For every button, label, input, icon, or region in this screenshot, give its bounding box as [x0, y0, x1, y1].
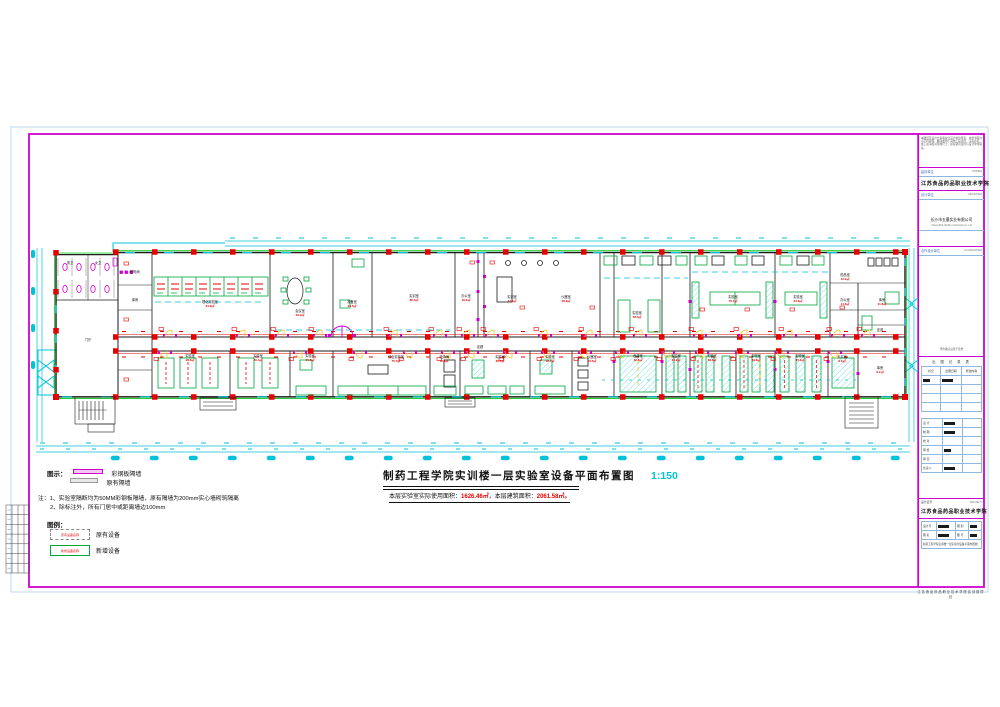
- tb-stamp-note: 甲方确认后签字盖章: [921, 348, 982, 351]
- svg-text:28.7㎡: 28.7㎡: [546, 358, 555, 363]
- tb-record-col-3: 修改内容: [962, 367, 982, 376]
- field-value-blob: [938, 525, 949, 528]
- floor-plan-canvas: 男卫女卫门厅配电间库房理化实验室64.8㎡会议室46.2㎡准备室23.5㎡实训室…: [0, 0, 1000, 707]
- new-equipment-tag: 新增设备名称: [61, 549, 79, 553]
- record-entry-blob: [942, 379, 953, 382]
- svg-text:75.4㎡: 75.4㎡: [392, 358, 401, 363]
- record-entry-blob: [923, 379, 930, 382]
- svg-text:配电间: 配电间: [130, 269, 140, 274]
- tb-record-table: 标记 出图日期 修改内容: [921, 366, 982, 412]
- svg-text:32.6㎡: 32.6㎡: [634, 357, 643, 362]
- svg-text:39.8㎡: 39.8㎡: [752, 357, 761, 362]
- title-underline: [383, 486, 579, 487]
- legend-lines-heading: 图示：: [47, 471, 67, 478]
- svg-text:18.2㎡: 18.2㎡: [462, 297, 471, 302]
- tb-sheet-title: 制药工程学院实训楼一层实验室设备平面布置图: [922, 540, 982, 549]
- tb-sign-label: 校 对: [922, 437, 943, 446]
- tb-disclaimer: 本图纸及设计方案版权归设计单位所有，未经书面许可不得复制、翻印或用于其他工程项目…: [921, 137, 982, 150]
- tb-designer-name-en: ChangSha WuMo Industrial Co.,Ltd: [921, 224, 982, 227]
- tb-field-type: 图 别: [956, 522, 969, 531]
- drawing-title-area: 制药工程学院实训楼一层实验室设备平面布置图1:150: [383, 466, 678, 490]
- svg-text:23.5㎡: 23.5㎡: [348, 303, 357, 308]
- tb-designer-row: 设计单位 DESIGNER: [921, 192, 982, 197]
- tb-record-col-2: 出图日期: [941, 367, 962, 376]
- area-used-value: 1626.46㎡: [461, 494, 489, 500]
- tb-sign-label: 负责人: [922, 464, 943, 473]
- tb-project-name: 江苏食品药品职业技术学院: [921, 508, 982, 515]
- svg-text:8.2㎡: 8.2㎡: [876, 369, 883, 374]
- field-value-blob: [970, 534, 977, 537]
- svg-text:64.8㎡: 64.8㎡: [206, 303, 215, 308]
- tb-codesigner-en: CO.DESIGNER: [964, 249, 982, 252]
- svg-text:19.5㎡: 19.5㎡: [588, 358, 597, 363]
- title-underline-2: [383, 489, 579, 490]
- svg-text:36.4㎡: 36.4㎡: [496, 358, 505, 363]
- area-prefix: 本层实验室实际使用面积：: [389, 494, 461, 500]
- dimension-lines: [33, 238, 914, 458]
- svg-text:门厅: 门厅: [85, 337, 92, 342]
- svg-text:39.8㎡: 39.8㎡: [708, 357, 717, 362]
- lab-benches: [154, 256, 899, 395]
- tb-field-design-no: 设计号: [922, 522, 937, 531]
- margin-revision-strip: [6, 505, 29, 573]
- tb-sign-label: 审 定: [922, 455, 943, 464]
- svg-text:14.6㎡: 14.6㎡: [841, 301, 850, 306]
- tb-owner-row: 建设单位 OWNER: [921, 169, 982, 174]
- tb-record-col-1: 标记: [922, 367, 941, 376]
- existing-equipment-tag: 原有设备名称: [61, 533, 79, 537]
- svg-text:12.6㎡: 12.6㎡: [440, 358, 449, 363]
- drawing-scale: 1:150: [651, 470, 678, 482]
- svg-text:库房: 库房: [132, 297, 138, 302]
- drawing-sheet: 男卫女卫门厅配电间库房理化实验室64.8㎡会议室46.2㎡准备室23.5㎡实训室…: [0, 0, 1000, 707]
- svg-text:86.4㎡: 86.4㎡: [410, 297, 419, 302]
- signature-blob: [944, 431, 955, 434]
- tb-sign-label: 设 计: [922, 419, 943, 428]
- drawing-title: 制药工程学院实训楼一层实验室设备平面布置图: [383, 470, 635, 482]
- svg-text:走道: 走道: [877, 327, 884, 332]
- svg-text:30.4㎡: 30.4㎡: [254, 357, 263, 362]
- svg-text:28.6㎡: 28.6㎡: [186, 357, 195, 362]
- field-value-blob: [938, 534, 949, 537]
- tb-designer-name: 长沙市五墨实业有限公司: [921, 218, 982, 223]
- tb-owner-en: OWNER: [972, 170, 982, 173]
- svg-text:46.2㎡: 46.2㎡: [296, 312, 305, 317]
- note-line-1: 注：1、实验室隔断均为50MM彩钢板隔墙，原有隔墙为200mm实心墙砌筑隔离: [38, 493, 239, 502]
- svg-text:9.6㎡: 9.6㎡: [838, 358, 845, 363]
- tb-signature-table: 设 计 制 图 校 对 审 核 审 定 负责人: [921, 418, 982, 473]
- area-summary: 本层实验室实际使用面积：1626.46㎡，本层建筑面积：2061.58㎡。: [389, 491, 570, 503]
- svg-text:走廊: 走廊: [477, 344, 484, 349]
- tb-codesigner-row: 合作设计单位 CO.DESIGNER: [921, 248, 982, 253]
- title-block: 本图纸及设计方案版权归设计单位所有，未经书面许可不得复制、翻印或用于其他工程项目…: [918, 134, 984, 587]
- svg-text:58.3㎡: 58.3㎡: [633, 314, 642, 319]
- note-line-2: 2、除标注外，所有门居中或距离墙边100mm: [50, 502, 165, 511]
- svg-text:21.8㎡: 21.8㎡: [306, 357, 315, 362]
- tb-codesigner-label: 合作设计单位: [921, 248, 940, 253]
- tb-project-cert-label: 设计证号: [921, 500, 932, 504]
- tb-designer-label: 设计单位: [921, 192, 934, 197]
- stairs: [75, 397, 878, 432]
- tb-owner-name: 江苏食品药品职业技术学院: [921, 180, 982, 187]
- area-end: 。: [564, 494, 570, 500]
- svg-text:男卫: 男卫: [67, 260, 74, 265]
- signature-blob: [944, 467, 955, 470]
- tb-sign-label: 审 核: [922, 446, 943, 455]
- new-equipment-label: 新增设备: [96, 546, 120, 555]
- tb-project-row: 设计证号 PROJECT: [921, 500, 982, 504]
- tb-field-name: 图 名: [922, 531, 937, 540]
- existing-equipment-label: 原有设备: [96, 530, 120, 539]
- svg-text:64.9㎡: 64.9㎡: [794, 298, 803, 303]
- svg-text:12.2㎡: 12.2㎡: [841, 276, 850, 281]
- signature-blob: [944, 449, 951, 452]
- area-total-value: 2061.58㎡: [537, 494, 565, 500]
- signature-blob: [944, 422, 955, 425]
- tb-footer-text: 江苏食品药品职业技术学院实训楼项目: [916, 589, 986, 599]
- existing-partition-label: 原有隔墙: [106, 481, 130, 487]
- tb-designer-en: DESIGNER: [968, 193, 982, 196]
- svg-text:45.2㎡: 45.2㎡: [796, 357, 805, 362]
- tb-field-no: 图 号: [956, 531, 969, 540]
- field-value-blob: [970, 525, 977, 528]
- svg-text:女卫: 女卫: [95, 260, 102, 265]
- tb-project-en: PROJECT: [970, 501, 982, 504]
- svg-text:76.1㎡: 76.1㎡: [729, 298, 738, 303]
- interior-cyan-dashes: [155, 272, 856, 380]
- svg-text:47.4㎡: 47.4㎡: [508, 298, 517, 303]
- legend-lines: 图示： 彩钢板隔墙 原有隔墙: [47, 463, 141, 481]
- new-equipment-swatch: 新增设备名称: [50, 545, 90, 556]
- tb-owner-label: 建设单位: [921, 169, 934, 174]
- svg-text:28.9㎡: 28.9㎡: [562, 298, 571, 303]
- tb-fields: 设计号 图 别 图 名 图 号 制药工程学院实训楼一层实验室设备平面布置图: [921, 521, 982, 549]
- tb-sign-label: 制 图: [922, 428, 943, 437]
- tb-record-title: 出 图 记 录 表: [921, 359, 982, 364]
- svg-text:30.2㎡: 30.2㎡: [672, 357, 681, 362]
- svg-text:11.8㎡: 11.8㎡: [878, 301, 887, 306]
- area-mid: ，本层建筑面积：: [489, 494, 537, 500]
- legend-boxes-heading: 图例：: [47, 519, 67, 529]
- existing-partition-line-sample: [70, 478, 98, 483]
- existing-equipment-swatch: 原有设备名称: [50, 529, 90, 540]
